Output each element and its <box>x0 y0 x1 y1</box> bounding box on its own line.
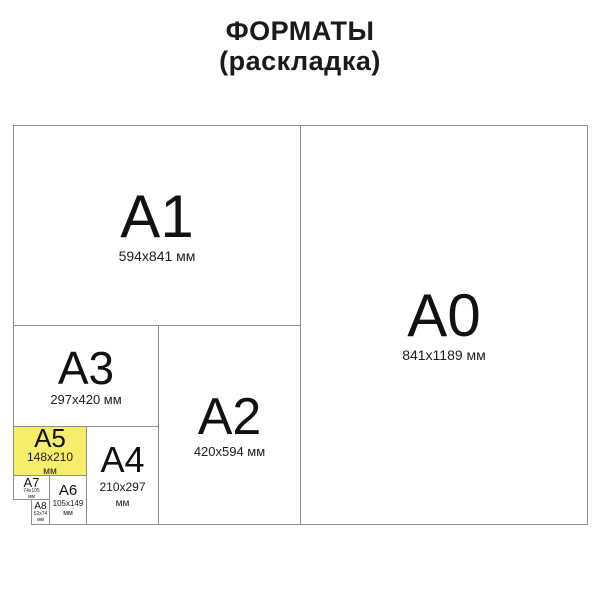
format-size-a4: 210x297 <box>99 480 145 494</box>
format-box-a7: A7 74x105 мм <box>13 475 50 500</box>
page-title: ФОРМАТЫ (раскладка) <box>0 16 600 76</box>
format-label-a7: A7 <box>24 476 40 489</box>
format-box-a8: A8 52x74 мм <box>31 499 50 525</box>
title-line-layout: (раскладка) <box>0 46 600 76</box>
format-box-a6: A6 105x149 мм <box>49 475 87 525</box>
format-label-a4: A4 <box>100 442 144 478</box>
format-box-a5-highlighted: A5 148x210 мм <box>13 426 87 476</box>
format-size-a1: 594x841 мм <box>119 248 196 265</box>
format-size-a7: 74x105 <box>23 489 39 494</box>
format-size-a0: 841x1189 мм <box>402 347 486 364</box>
format-label-a1: A1 <box>120 187 193 247</box>
format-label-a6: A6 <box>59 483 77 499</box>
format-unit-a4: мм <box>116 498 130 510</box>
title-line-formats: ФОРМАТЫ <box>0 16 600 46</box>
format-unit-a8: мм <box>37 518 44 523</box>
format-unit-a6: мм <box>63 510 73 518</box>
format-size-a3: 297x420 мм <box>50 392 121 407</box>
format-size-a2: 420x594 мм <box>194 444 265 460</box>
format-size-a5: 148x210 <box>27 451 73 464</box>
format-box-a3: A3 297x420 мм <box>13 325 159 427</box>
format-box-a2: A2 420x594 мм <box>158 325 301 525</box>
format-label-a2: A2 <box>198 391 262 443</box>
format-label-a8: A8 <box>34 502 46 512</box>
format-size-a6: 105x149 <box>53 499 84 508</box>
format-box-a4: A4 210x297 мм <box>86 426 159 525</box>
format-label-a5: A5 <box>34 426 66 451</box>
format-label-a3: A3 <box>58 345 114 391</box>
format-box-a0: A0 841x1189 мм <box>300 125 588 525</box>
format-box-a1: A1 594x841 мм <box>13 125 301 326</box>
format-label-a0: A0 <box>407 286 480 346</box>
format-size-a8: 52x74 <box>34 512 48 517</box>
paper-formats-diagram: ФОРМАТЫ (раскладка) A1 594x841 мм A0 841… <box>0 0 600 600</box>
